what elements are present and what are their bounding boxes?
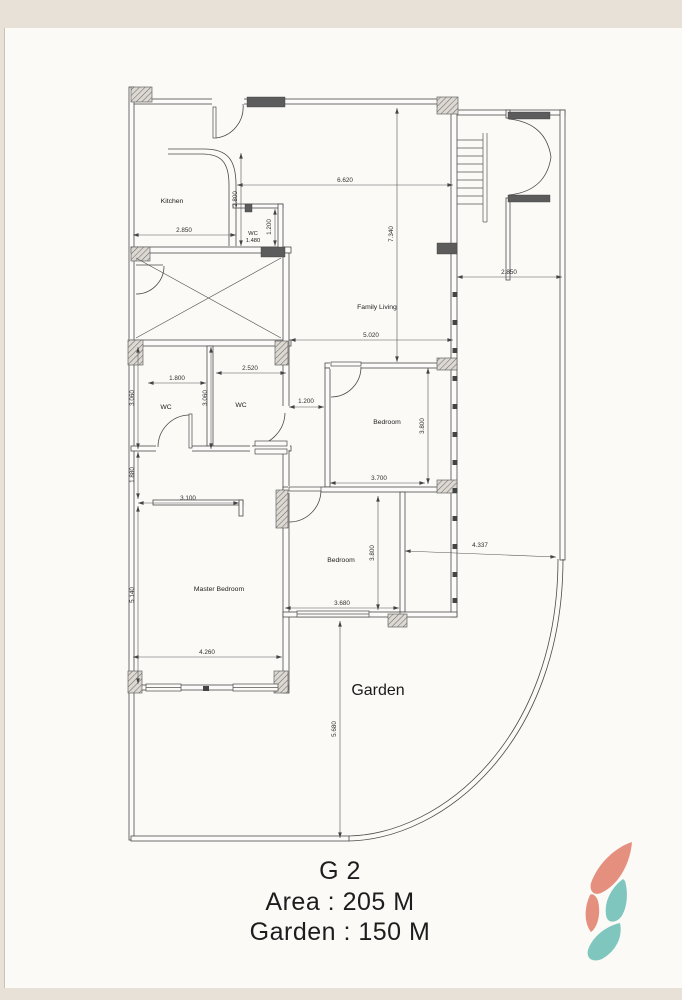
dim-master-height: 5.140	[129, 587, 136, 603]
dim-living-width: 5.020	[363, 332, 379, 339]
logo-leaf-coral-bottom	[586, 894, 600, 932]
dim-living-height: 7.340	[388, 226, 395, 242]
title-block: G 2 Area : 205 M Garden : 150 M	[140, 856, 540, 948]
entry-double-door-arc-top	[509, 119, 551, 157]
kitchen-door-leaf	[213, 107, 216, 138]
dim-wc-left-height: 3.060	[129, 390, 136, 406]
wc-left-door-leaf	[189, 414, 192, 448]
void-door-arc	[136, 266, 164, 294]
dim-side-yard-width: 2.850	[501, 269, 517, 276]
dim-wc-left-width: 1.800	[169, 375, 185, 382]
dim-garden-height: 5.680	[331, 721, 338, 737]
area-text: Area : 205 M	[140, 887, 540, 918]
dim-wc-right-width: 2.520	[242, 365, 258, 372]
niche-shelf-top	[255, 441, 287, 446]
dim-bedroom-right-height: 3.800	[419, 418, 426, 434]
dim-wc-small-width: 1.480	[246, 238, 261, 244]
room-label-wc-left: WC	[160, 404, 171, 411]
dim-hall-height: 1.880	[129, 467, 136, 483]
company-logo	[578, 833, 648, 963]
bedroom-middle-door-arc	[289, 491, 321, 522]
dim-kitchen-width: 2.850	[176, 227, 192, 234]
interior-walls	[131, 110, 510, 693]
staircase	[457, 133, 487, 222]
wc-left-door-arc	[158, 415, 189, 447]
outer-walls	[129, 87, 565, 841]
bedroom-middle-door-leaf	[289, 487, 321, 491]
room-label-bedroom-middle: Bedroom	[327, 557, 355, 564]
dim-bedroom-middle-width: 3.680	[334, 600, 350, 607]
garden-area-text: Garden : 150 M	[140, 917, 540, 948]
bedroom-right-door-arc	[331, 367, 361, 397]
dim-wc-small-height: 1.200	[266, 219, 273, 235]
room-label-wc-small: WC	[248, 231, 258, 237]
hatched-columns	[128, 87, 458, 693]
dim-wc-mid-height: 3.060	[202, 390, 209, 406]
kitchen-door-arc	[216, 104, 243, 138]
dim-bedroom-middle-height: 3.800	[369, 545, 376, 561]
entry-double-door-arc-bottom	[509, 157, 551, 195]
room-label-wc-right: WC	[235, 402, 246, 409]
room-label-family-living: Family Living	[357, 304, 397, 311]
void-cross	[136, 258, 281, 338]
dim-hall-opening: 1.200	[298, 398, 314, 405]
dim-master-width: 4.260	[199, 649, 215, 656]
room-label-kitchen: Kitchen	[161, 198, 184, 205]
dim-hall-width: 3.100	[180, 495, 196, 502]
unit-title: G 2	[140, 856, 540, 887]
windows	[146, 611, 369, 691]
dim-bedroom-right-width: 3.700	[371, 475, 387, 482]
room-label-bedroom-right: Bedroom	[373, 419, 401, 426]
niche-shelf-bottom	[255, 449, 287, 454]
bedroom-right-door-leaf	[331, 362, 361, 366]
dimension-lines	[133, 108, 562, 838]
room-label-master-bedroom: Master Bedroom	[194, 586, 245, 593]
window-lintels	[245, 97, 550, 257]
room-label-garden: Garden	[351, 682, 404, 699]
doors	[136, 104, 551, 522]
dim-top-width: 6.620	[337, 177, 353, 184]
dimension-labels: 6.620 7.340 2.850 2.800 1.200 2.850 5.02…	[129, 177, 517, 737]
dim-kitchen-height: 2.800	[232, 191, 239, 207]
dim-garden-width: 4.337	[472, 542, 488, 549]
